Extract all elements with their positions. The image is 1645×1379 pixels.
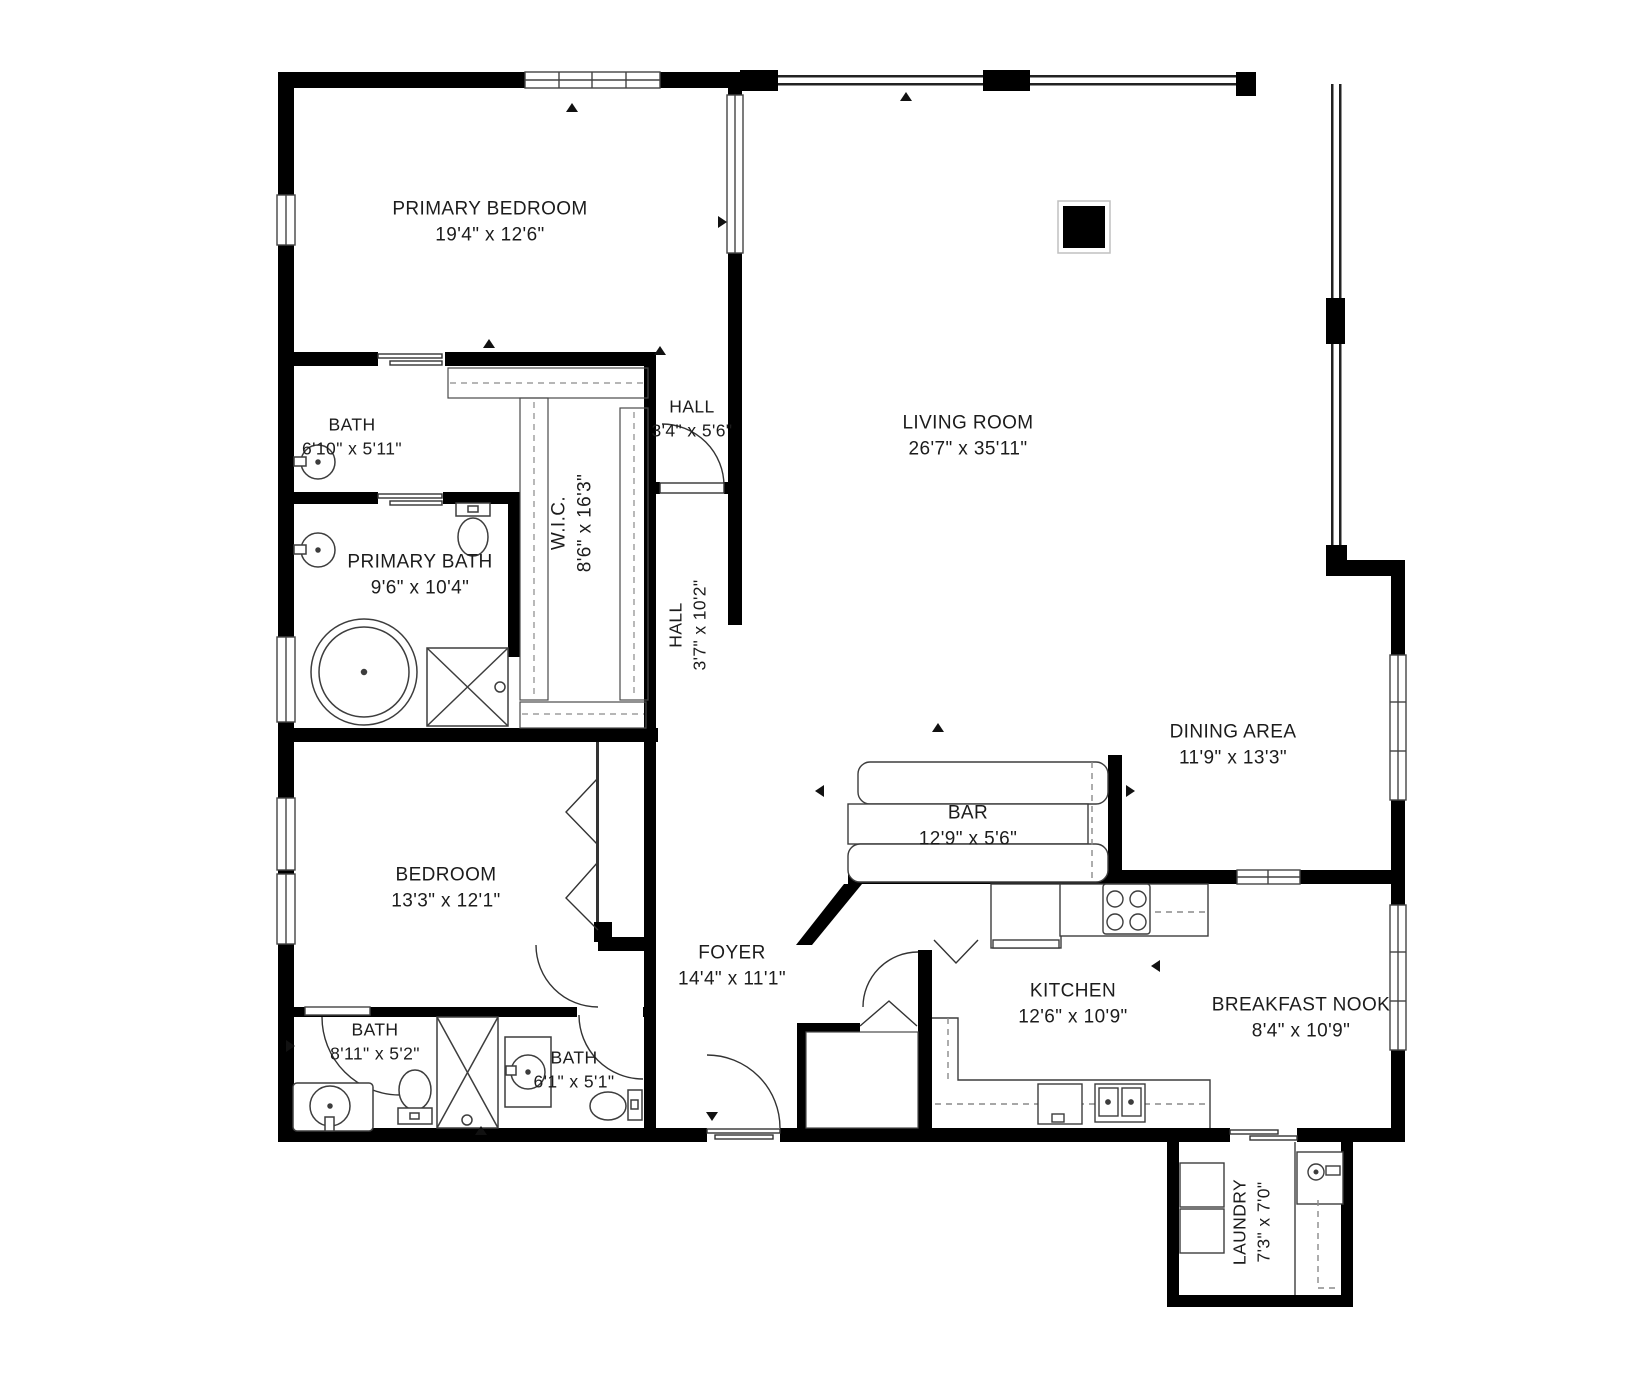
room-dims: 9'6" x 10'4": [347, 575, 492, 601]
room-dims: 14'4" x 11'1": [678, 966, 786, 992]
bifold-door-closet: [566, 778, 598, 845]
sink-drain: [1314, 1170, 1318, 1174]
dimension-arrow: [654, 346, 666, 355]
entry-door-arc: [707, 1055, 780, 1128]
wall-closet-left: [797, 1023, 806, 1128]
wall-bar-right: [1108, 755, 1122, 885]
wall-kitchen-foyer: [918, 950, 932, 1128]
room-dims: 6'10" x 5'11": [302, 437, 402, 461]
sink-drain: [328, 1104, 332, 1108]
wall-wic-top: [445, 352, 655, 366]
room-label-bedroom: BEDROOM 13'3" x 12'1": [391, 862, 500, 913]
wall: [278, 492, 378, 504]
wall: [1300, 870, 1405, 884]
room-dims: 3'4" x 5'6": [652, 419, 733, 443]
burner: [1107, 914, 1123, 930]
wall: [598, 937, 656, 951]
room-label-wic: W.I.C. 8'6" x 16'3": [546, 474, 597, 572]
toilet-icon-primary: [456, 503, 490, 556]
room-dims: 8'11" x 5'2": [330, 1042, 420, 1066]
dimension-arrow: [1126, 785, 1135, 797]
toilet-icon-bath-center: [590, 1090, 642, 1120]
room-label-breakfast-nook: BREAKFAST NOOK 8'4" x 10'9": [1212, 992, 1390, 1043]
dryer-icon: [1180, 1209, 1224, 1253]
room-name: PRIMARY BEDROOM: [392, 196, 587, 222]
room-dims: 8'6" x 16'3": [572, 474, 598, 572]
room-name: LAUNDRY: [1228, 1179, 1252, 1265]
laundry-pocket-door: [1230, 1130, 1278, 1134]
wall-wic-left: [508, 492, 520, 657]
room-label-laundry: LAUNDRY 7'3" x 7'0": [1228, 1179, 1275, 1265]
room-name: KITCHEN: [1018, 978, 1127, 1004]
kitchen-door-arc: [863, 952, 918, 1007]
dimension-arrow: [1151, 960, 1160, 972]
room-dims: 11'9" x 13'3": [1170, 745, 1297, 771]
room-name: FOYER: [678, 940, 786, 966]
room-label-living-room: LIVING ROOM 26'7" x 35'11": [902, 410, 1033, 461]
wall: [278, 352, 378, 366]
room-dims: 13'3" x 12'1": [391, 888, 500, 914]
room-dims: 7'3" x 7'0": [1252, 1179, 1276, 1265]
refrigerator-body: [991, 884, 1061, 948]
room-name: BAR: [919, 800, 1017, 826]
room-name: LIVING ROOM: [902, 410, 1033, 436]
foyer-closet-interior: [806, 1032, 918, 1128]
toilet-button: [631, 1100, 638, 1109]
sink-drain: [526, 1070, 530, 1074]
room-label-primary-bath: PRIMARY BATH 9'6" x 10'4": [347, 549, 492, 600]
room-label-primary-bedroom: PRIMARY BEDROOM 19'4" x 12'6": [392, 196, 587, 247]
dimension-arrow: [815, 785, 824, 797]
room-label-dining-area: DINING AREA 11'9" x 13'3": [1170, 719, 1297, 770]
burner: [1130, 914, 1146, 930]
room-dims: 26'7" x 35'11": [902, 436, 1033, 462]
dimension-arrow: [566, 103, 578, 112]
wall-post: [983, 70, 1030, 91]
room-label-hall-vertical: HALL 3'7" x 10'2": [664, 579, 711, 670]
window-kitchen-wall: [1237, 870, 1300, 884]
wall-diagonal: [796, 884, 862, 945]
wall: [780, 1128, 1230, 1142]
room-dims: 6'1" x 5'1": [534, 1070, 615, 1094]
dimension-arrow: [706, 1112, 718, 1121]
sliding-door: [378, 494, 442, 498]
toilet-bowl: [590, 1092, 626, 1120]
room-name: PRIMARY BATH: [347, 549, 492, 575]
toilet-button: [468, 506, 478, 512]
room-name: BEDROOM: [391, 862, 500, 888]
shower-valve: [462, 1115, 472, 1125]
wall-post: [740, 70, 778, 91]
sink-faucet: [1326, 1166, 1340, 1175]
sink-drain: [1129, 1100, 1133, 1104]
window-top: [525, 72, 660, 88]
room-dims: 12'9" x 5'6": [919, 826, 1017, 852]
laundry-closet-dashed: [1318, 1200, 1340, 1288]
room-name: BATH: [534, 1046, 615, 1070]
dishwasher-icon: [1038, 1084, 1082, 1124]
entry-door-slab: [707, 1129, 780, 1133]
wall: [724, 482, 742, 494]
washer-icon: [1180, 1163, 1224, 1207]
kitchen-sink-icon: [1095, 1084, 1145, 1122]
vanity-icon-bath-left: [293, 1083, 373, 1131]
toilet-icon-bath-left: [398, 1070, 432, 1124]
bifold-door-closet: [566, 862, 598, 930]
wall-closet-top: [797, 1023, 860, 1032]
closet-front-line: [596, 742, 599, 922]
column: [1063, 206, 1105, 248]
room-label-foyer: FOYER 14'4" x 11'1": [678, 940, 786, 991]
window-bath: [305, 1007, 370, 1015]
bifold-door-foyer-closet: [860, 1001, 917, 1026]
column-icon: [1058, 201, 1110, 253]
refrigerator-icon: [991, 884, 1061, 948]
glass-walls: [740, 70, 1347, 576]
room-label-bath-center: BATH 6'1" x 5'1": [534, 1046, 615, 1093]
floor-plan-drawing: [0, 0, 1645, 1379]
room-name: DINING AREA: [1170, 719, 1297, 745]
room-name: BREAKFAST NOOK: [1212, 992, 1390, 1018]
sink-drain: [1106, 1100, 1110, 1104]
bedroom-door-arc: [536, 945, 598, 1007]
laundry-pocket-door: [1250, 1136, 1297, 1140]
room-dims: 19'4" x 12'6": [392, 222, 587, 248]
bifold-door-pantry: [934, 940, 978, 963]
sliding-door: [390, 361, 442, 365]
floor-plan: PRIMARY BEDROOM 19'4" x 12'6" BATH 6'10"…: [0, 0, 1645, 1379]
sink-faucet: [506, 1066, 516, 1075]
room-name: HALL: [652, 395, 733, 419]
entry-door-slab: [715, 1135, 773, 1139]
shower-icon-bath: [437, 1017, 498, 1128]
wall-laundry-left: [1167, 1142, 1179, 1307]
dimension-arrow: [900, 92, 912, 101]
bar-counter-upper: [858, 762, 1108, 804]
wall-post: [1236, 72, 1256, 96]
wall: [643, 1007, 656, 1017]
closet-shelf: [520, 702, 646, 728]
room-label-hall-small: HALL 3'4" x 5'6": [652, 395, 733, 442]
wall: [278, 72, 525, 88]
shower-icon-primary: [427, 648, 508, 726]
laundry-sink-icon: [1297, 1152, 1343, 1204]
kitchen-fixtures: [848, 762, 1210, 1128]
dimension-arrow: [483, 339, 495, 348]
room-name: HALL: [664, 579, 688, 670]
laundry-divider-line: [1294, 1142, 1296, 1295]
room-label-kitchen: KITCHEN 12'6" x 10'9": [1018, 978, 1127, 1029]
room-dims: 12'6" x 10'9": [1018, 1004, 1127, 1030]
sliding-door: [390, 501, 442, 505]
sink-faucet: [294, 545, 306, 554]
hall-door-slab: [660, 483, 724, 493]
sliding-door: [378, 354, 442, 358]
bathtub-icon: [311, 619, 417, 725]
dimension-arrow: [718, 216, 727, 228]
sink-faucet: [325, 1117, 334, 1131]
toilet-bowl: [399, 1070, 431, 1110]
room-dims: 3'7" x 10'2": [688, 579, 712, 670]
wall-suite-bedroom: [278, 728, 658, 742]
refrigerator-doors: [993, 940, 1059, 948]
window-interior: [727, 95, 743, 253]
room-label-bar: BAR 12'9" x 5'6": [919, 800, 1017, 851]
room-label-bath-upper: BATH 6'10" x 5'11": [302, 413, 402, 460]
wall: [648, 482, 660, 494]
wall-post: [1326, 545, 1347, 576]
sink-drain: [316, 548, 320, 552]
dimension-arrow: [932, 723, 944, 732]
wall-post: [1326, 298, 1345, 344]
room-label-bath-left: BATH 8'11" x 5'2": [330, 1018, 420, 1065]
sink-icon-primary-bath: [294, 533, 335, 567]
room-name: W.I.C.: [546, 474, 572, 572]
burner: [1107, 891, 1123, 907]
burner: [1130, 891, 1146, 907]
wall-laundry-bottom: [1167, 1295, 1353, 1307]
room-name: BATH: [330, 1018, 420, 1042]
stove-icon: [1103, 884, 1150, 934]
room-dims: 8'4" x 10'9": [1212, 1018, 1390, 1044]
room-name: BATH: [302, 413, 402, 437]
toilet-button: [410, 1113, 419, 1119]
wall: [1297, 1128, 1405, 1142]
shower-valve: [495, 682, 505, 692]
dishwasher-handle: [1052, 1114, 1064, 1122]
tub-drain: [362, 670, 367, 675]
